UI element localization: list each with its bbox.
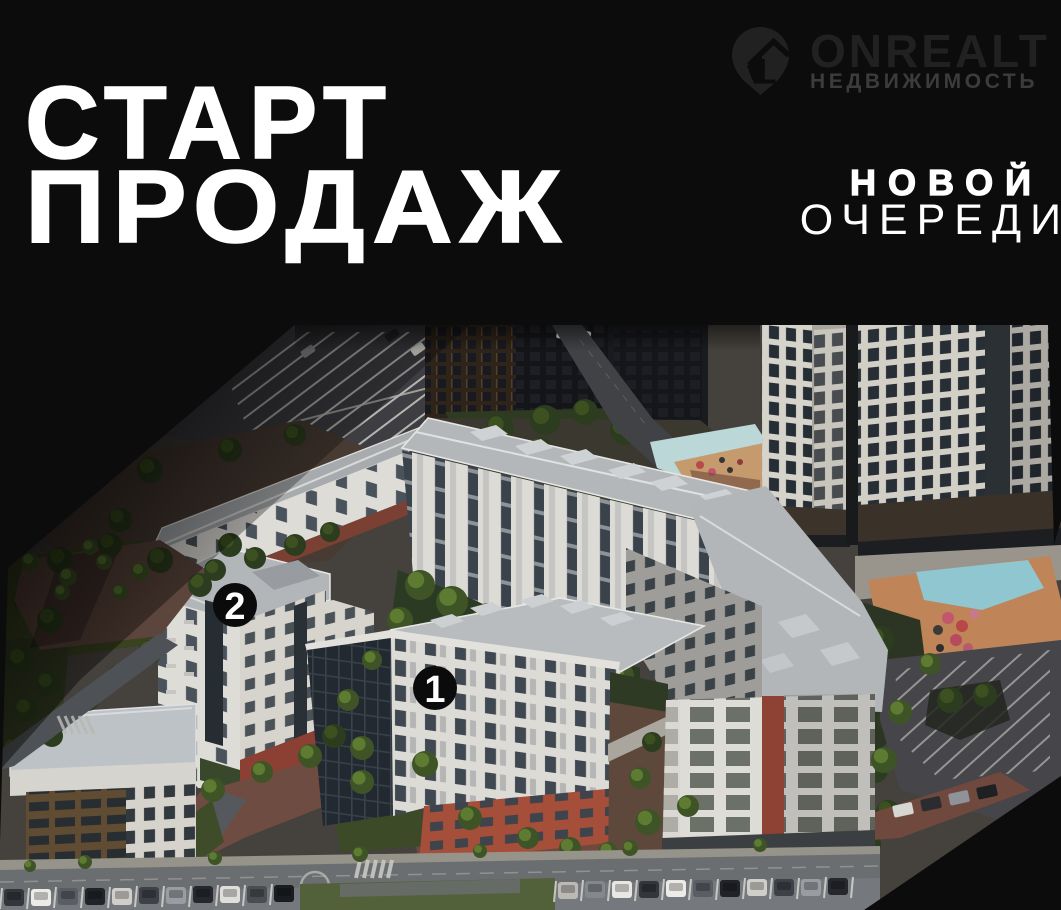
svg-text:1: 1 [424,669,445,711]
svg-text:2: 2 [224,586,245,628]
